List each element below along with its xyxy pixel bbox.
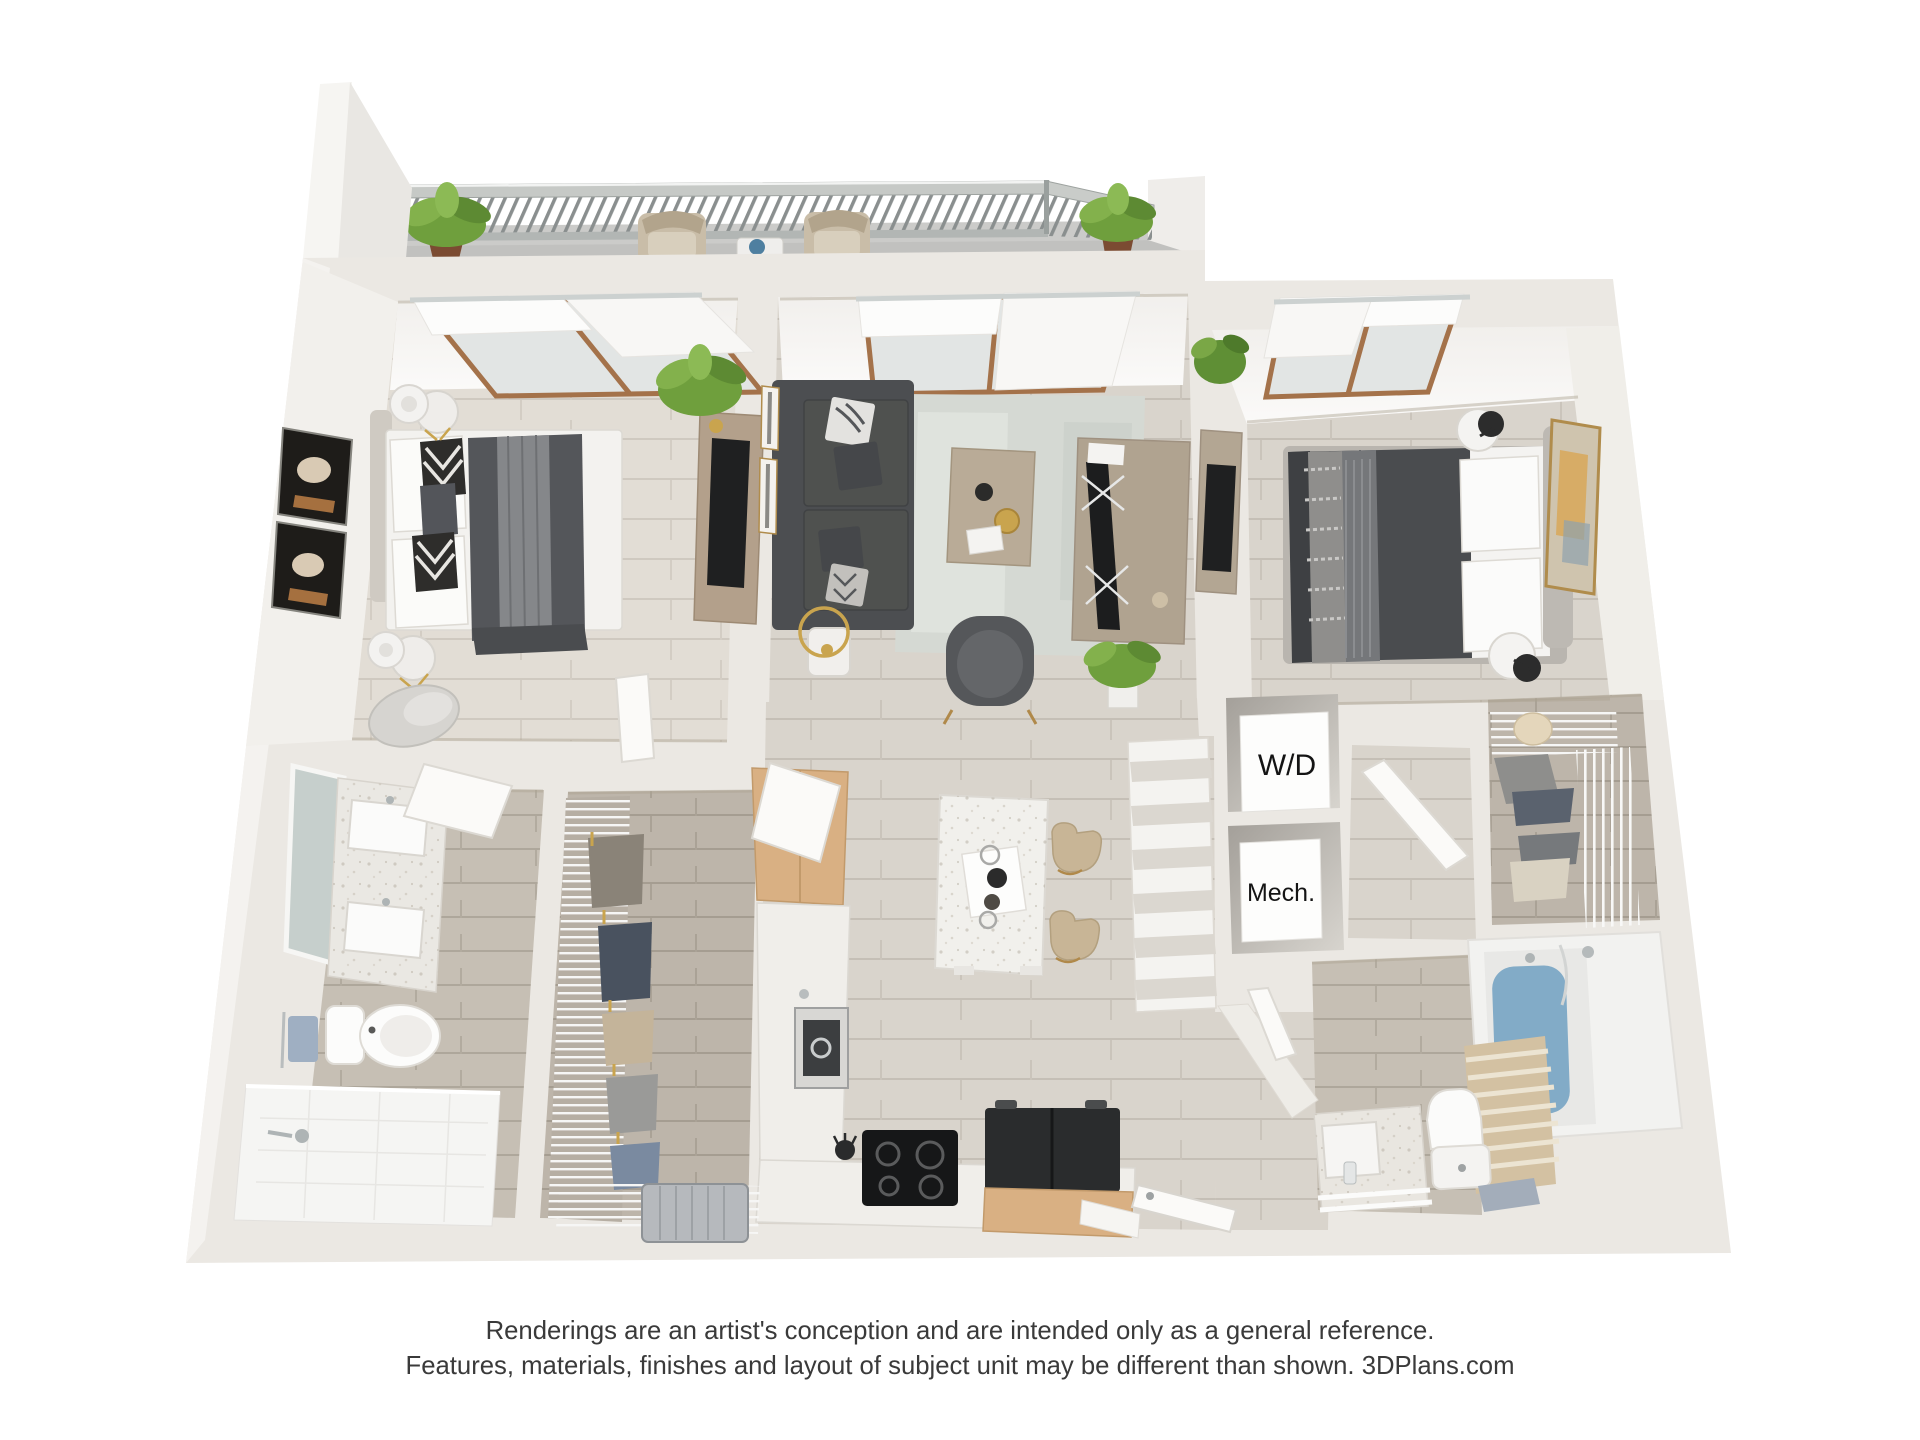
svg-text:Renderings are an artist's con: Renderings are an artist's conception an…	[486, 1317, 1435, 1345]
svg-text:Features, materials, finishes: Features, materials, finishes and layout…	[406, 1352, 1515, 1380]
svg-text:Mech.: Mech.	[1247, 879, 1315, 907]
svg-text:W/D: W/D	[1258, 749, 1316, 782]
